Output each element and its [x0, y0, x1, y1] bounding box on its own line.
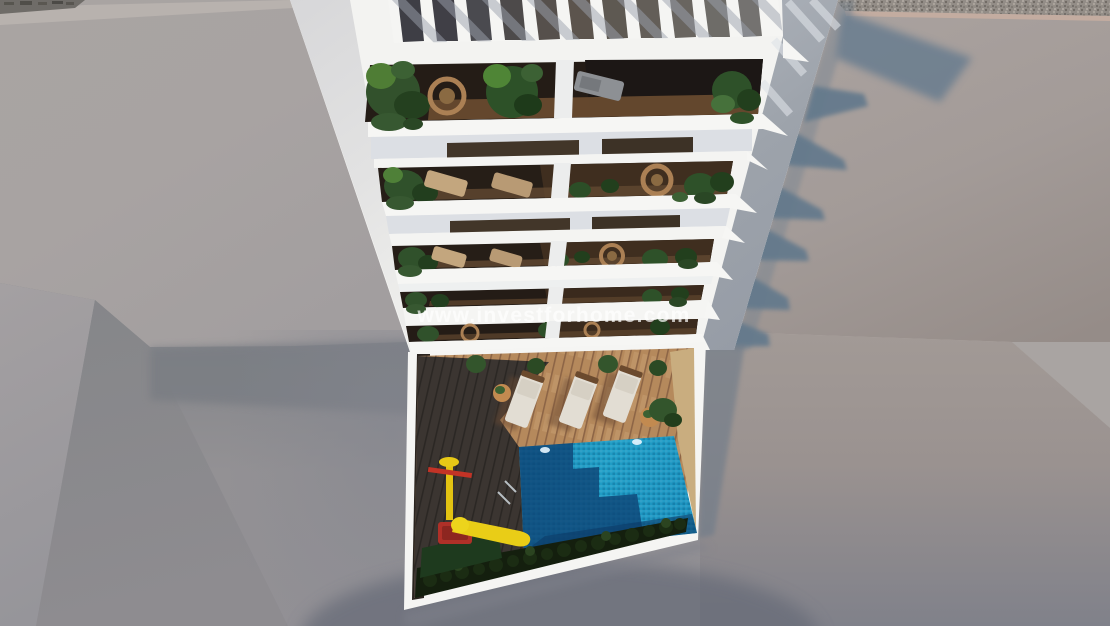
svg-text:www.investforhome.com: www.investforhome.com: [417, 304, 691, 327]
